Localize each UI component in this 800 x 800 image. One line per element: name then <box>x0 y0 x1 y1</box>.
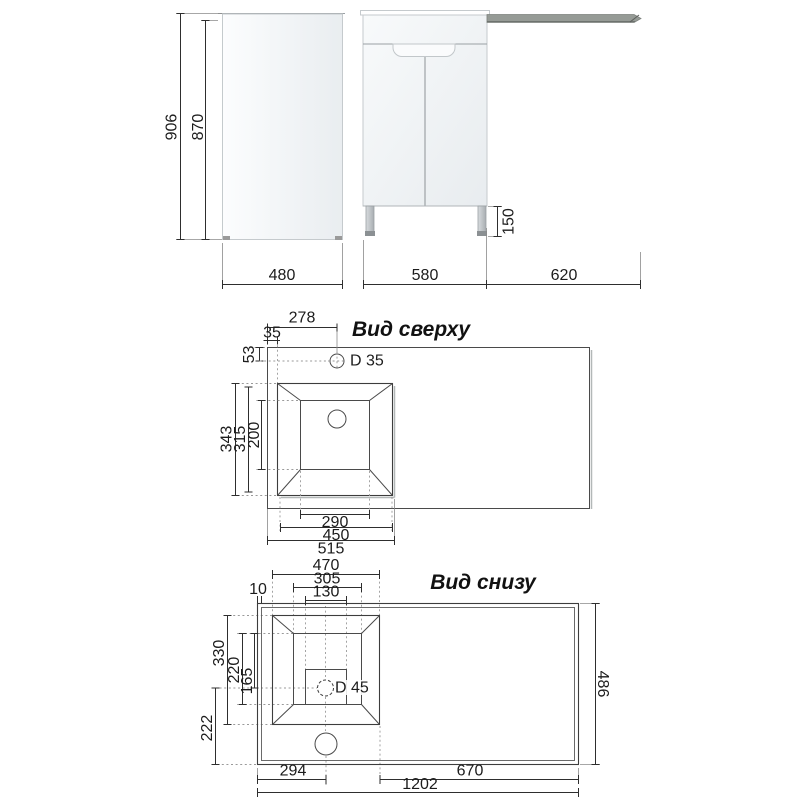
dim-drain-recess-width: 130 <box>313 584 340 601</box>
dim-sink-offset-left: 294 <box>280 763 307 780</box>
drawing-svg: 906 870 150 480 580 620 Вид сверху <box>0 0 800 800</box>
dim-worktop-total-width: 1202 <box>402 776 438 793</box>
dim-drain-from-bowl-top: 165 <box>239 668 256 695</box>
dim-worktop-depth: 486 <box>594 671 611 698</box>
sink-bowl-bottom <box>301 401 370 470</box>
worktop-inner-rib <box>262 608 575 761</box>
bottom-view-title: Вид снизу <box>430 571 537 594</box>
leg-left <box>366 206 374 233</box>
bottom-view-dimensions: 470 305 130 10 330 220 165 222 D 45 486 … <box>199 557 611 797</box>
leg-right-foot <box>477 231 487 236</box>
dim-wing-span: 670 <box>457 763 484 780</box>
dim-sink-outer-width: 515 <box>318 541 345 558</box>
dim-faucet-from-left: 278 <box>289 310 316 327</box>
side-panel-foot-left <box>223 236 230 240</box>
dim-drain-to-front: 222 <box>199 715 216 742</box>
top-view: Вид сверху 278 35 <box>219 310 592 558</box>
top-view-title: Вид сверху <box>352 318 471 341</box>
side-panel-foot-right <box>335 236 342 240</box>
worktop-edge-front <box>361 11 490 16</box>
dim-sink-edge-inset: 35 <box>263 325 281 342</box>
dim-cabinet-width: 580 <box>412 267 439 284</box>
dim-drain-hole-diameter: D 45 <box>335 680 369 697</box>
leg-left-foot <box>365 231 375 236</box>
dim-faucet-hole-diameter: D 35 <box>350 353 384 370</box>
faucet-hole-bottom-view <box>315 733 337 755</box>
dim-faucet-from-back: 53 <box>241 346 258 364</box>
bottom-view: Вид снизу 470 305 130 <box>199 557 611 797</box>
leg-right <box>478 206 486 233</box>
sink-rim-shadow <box>281 386 395 498</box>
front-elevation: 906 870 150 480 580 620 <box>164 11 642 290</box>
construction-lines-horizontal <box>210 616 317 765</box>
dim-overall-height: 906 <box>164 114 181 141</box>
technical-drawing-vanity: 906 870 150 480 580 620 Вид сверху <box>0 0 800 800</box>
dim-leg-height: 150 <box>501 208 518 235</box>
dim-wing-width: 620 <box>551 267 578 284</box>
faucet-centerlines <box>328 352 346 370</box>
dim-cabinet-height: 870 <box>190 114 207 141</box>
dim-edge-rib-offset: 10 <box>249 581 267 598</box>
dim-side-depth: 480 <box>269 267 296 284</box>
drain-hole-bottom-view <box>318 680 334 696</box>
worktop-outline-top-view <box>268 348 590 509</box>
side-panel <box>223 14 343 240</box>
drain-hole-top-view <box>328 410 346 428</box>
drawer-handle-recess <box>393 44 455 57</box>
dim-bowl-depth: 200 <box>246 422 263 449</box>
top-view-dimensions: 278 35 53 D 35 343 315 200 290 450 515 <box>219 310 395 558</box>
